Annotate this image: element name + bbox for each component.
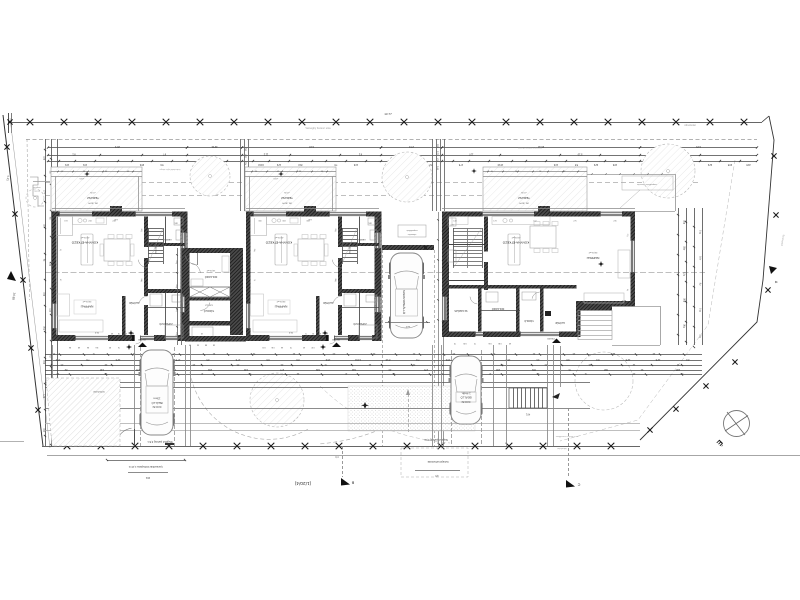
svg-text:173: 173 [493,221,496,223]
svg-text:Meglévő parking 3,5m: Meglévő parking 3,5m [148,440,173,443]
svg-text:8'10: 8'10 [385,358,390,361]
svg-text:KAMRA: KAMRA [358,238,366,241]
svg-text:41,05 m2: 41,05 m2 [80,236,90,238]
svg-text:84: 84 [69,346,71,348]
svg-text:36: 36 [197,344,199,346]
svg-text:KONYHA-ÉTKEZŐ: KONYHA-ÉTKEZŐ [502,241,529,246]
svg-text:58: 58 [213,344,215,346]
svg-text:60: 60 [303,346,305,348]
svg-text:24,05 m2: 24,05 m2 [276,300,286,302]
svg-text:VB. 40/70: VB. 40/70 [87,202,97,204]
svg-text:LÉPCSŐ: LÉPCSŐ [154,246,157,255]
svg-text:13'4: 13'4 [445,358,450,361]
svg-text:5'10: 5'10 [577,153,582,156]
svg-text:16'6: 16'6 [505,358,510,361]
svg-text:PILLÉR: PILLÉR [138,338,146,341]
svg-text:10'10: 10'10 [497,163,503,165]
svg-text:PILLÉR: PILLÉR [547,337,555,340]
svg-text:KONYHA-ÉTKEZŐ: KONYHA-ÉTKEZŐ [71,241,98,246]
svg-text:11'9: 11'9 [696,145,701,149]
svg-text:12'2: 12'2 [276,163,281,165]
svg-text:72: 72 [474,342,476,344]
svg-text:+0,15: +0,15 [283,191,289,193]
svg-text:277: 277 [279,368,284,371]
svg-text:143: 143 [453,221,456,223]
svg-text:80: 80 [109,346,111,348]
svg-text:368: 368 [603,368,608,371]
svg-text:244: 244 [112,221,115,223]
svg-text:TÁROLÓ: TÁROLÓ [204,309,214,312]
svg-text:57: 57 [125,332,127,334]
svg-text:23'5: 23'5 [727,163,732,165]
svg-text:12'8: 12'8 [625,358,630,361]
svg-text:235: 235 [613,221,616,223]
svg-text:SZ.GARÁZS: SZ.GARÁZS [454,309,467,312]
svg-text:NAPPALI: NAPPALI [274,305,287,309]
svg-text:24,05 m2: 24,05 m2 [82,300,92,302]
svg-text:128: 128 [463,342,466,344]
svg-text:27'2: 27'2 [409,145,414,149]
svg-text:behajtó térburkolat: behajtó térburkolat [427,460,448,463]
svg-text:79: 79 [454,342,456,344]
svg-text:+0,15: +0,15 [520,191,526,193]
svg-text:xx m kerítés vonalában: xx m kerítés vonalában [555,435,578,438]
svg-text:228: 228 [675,368,680,371]
svg-text:349: 349 [315,368,320,371]
svg-text:22'11: 22'11 [211,145,218,149]
svg-text:17: 17 [326,332,328,334]
svg-text:19'6: 19'6 [612,163,617,165]
svg-text:ELŐTÉR: ELŐTÉR [323,301,333,304]
svg-text:ELŐTÉR: ELŐTÉR [129,301,139,304]
svg-text:NAPPALI: NAPPALI [586,256,599,260]
svg-text:234: 234 [88,221,91,223]
svg-text:71: 71 [305,332,307,334]
svg-text:146: 146 [99,368,104,371]
svg-text:B: B [351,481,354,485]
svg-text:11'2: 11'2 [263,153,268,156]
svg-text:41,05 m2: 41,05 m2 [511,236,521,238]
svg-text:68: 68 [78,346,80,348]
svg-text:KONYHA-ÉTKEZŐ: KONYHA-ÉTKEZŐ [265,241,292,246]
svg-text:17'1: 17'1 [55,358,60,361]
svg-text:152: 152 [533,221,536,223]
svg-text:66: 66 [281,346,283,348]
svg-text:14'6: 14'6 [353,163,358,165]
svg-text:csapadékvíz elvezetés: csapadékvíz elvezetés [637,183,657,186]
svg-text:41,05 m2: 41,05 m2 [274,236,284,238]
svg-text:térburkolat lejtés iránya: térburkolat lejtés iránya [159,168,181,171]
svg-text:106: 106 [488,342,491,344]
svg-text:28'3: 28'3 [139,163,144,165]
svg-text:18'9: 18'9 [325,358,330,361]
svg-text:13.77: 13.77 [384,112,392,116]
svg-text:270: 270 [135,368,140,371]
svg-text:134: 134 [243,368,248,371]
svg-text:24,05 m2: 24,05 m2 [588,251,598,253]
svg-text:ZUHANYZÓ: ZUHANYZÓ [159,322,172,325]
svg-text:91: 91 [312,332,314,334]
svg-text:meglévő: meglévő [33,186,40,188]
svg-text:206: 206 [495,368,500,371]
svg-text:14,05 m2: 14,05 m2 [206,269,216,271]
svg-text:KAMRA: KAMRA [164,238,172,241]
svg-text:(1/20/4): (1/20/4) [294,480,311,486]
svg-text:132: 132 [311,346,314,348]
svg-text:PILLÉR: PILLÉR [332,338,340,341]
svg-text:TERASZ: TERASZ [281,196,293,200]
svg-text:22'2: 22'2 [707,163,712,165]
svg-text:19'1: 19'1 [64,163,69,165]
svg-text:ZUHANYZÓ: ZUHANYZÓ [353,322,366,325]
svg-text:útburkolat: útburkolat [557,447,567,450]
svg-text:51: 51 [59,249,61,251]
svg-text:19'10: 19'10 [258,163,264,165]
svg-text:WC: WC [174,222,178,224]
svg-text:ELŐTÉR: ELŐTÉR [555,321,565,324]
svg-text:22'8: 22'8 [746,163,751,165]
svg-text:VB. 40/70: VB. 40/70 [518,202,528,204]
svg-text:202: 202 [207,368,212,371]
svg-text:74: 74 [118,346,120,348]
svg-text:86: 86 [87,346,89,348]
svg-text:275: 275 [423,368,428,371]
svg-text:SZERVIZBEÁLLÓ: SZERVIZBEÁLLÓ [402,290,407,315]
svg-text:+0,15: +0,15 [80,177,85,179]
svg-text:LÉPCSŐ: LÉPCSŐ [348,246,351,255]
svg-text:136: 136 [271,346,274,348]
svg-text:359: 359 [531,368,536,371]
svg-text:DOLGOZÓ: DOLGOZÓ [492,307,505,310]
svg-text:22'2: 22'2 [593,163,598,165]
svg-text:+0,15: +0,15 [89,191,95,193]
svg-text:DOLGOZÓ: DOLGOZÓ [205,275,218,278]
svg-text:61: 61 [319,332,321,334]
svg-text:12'3: 12'3 [115,358,120,361]
svg-text:87: 87 [59,279,61,281]
svg-text:88: 88 [205,344,207,346]
svg-text:342: 342 [351,368,356,371]
svg-text:3'10: 3'10 [298,163,303,165]
svg-text:76: 76 [253,279,255,281]
svg-text:14'3: 14'3 [553,163,558,165]
svg-text:8,05 m2: 8,05 m2 [204,304,212,306]
svg-text:301: 301 [145,476,150,480]
svg-text:TÁROLÓ: TÁROLÓ [524,319,534,322]
svg-text:13'1: 13'1 [82,163,87,165]
svg-text:TERASZ: TERASZ [518,196,530,200]
svg-text:NAPPALI: NAPPALI [80,305,93,309]
svg-text:szennyvízcsatorna bekötés: szennyvízcsatorna bekötés [518,147,542,150]
svg-text:193: 193 [64,221,67,223]
svg-text:VB. 40/70: VB. 40/70 [281,202,291,204]
svg-text:I parasztház körbejárás 1,10 m: I parasztház körbejárás 1,10 m [129,465,163,468]
svg-text:63: 63 [509,342,511,344]
svg-text:138: 138 [498,342,501,344]
svg-text:elvezetés: elvezetés [408,233,416,236]
svg-text:91: 91 [626,289,628,291]
svg-text:Verseghy Ferenc utca: Verseghy Ferenc utca [305,126,331,130]
svg-text:WC: WC [368,222,372,224]
svg-text:17'6: 17'6 [235,358,240,361]
svg-text:C: C [577,483,580,487]
svg-text:TERASZ: TERASZ [87,196,99,200]
svg-text:304: 304 [306,221,309,223]
svg-text:csapadékvíz: csapadékvíz [406,229,417,231]
svg-text:63: 63 [111,332,113,334]
svg-text:17'8: 17'8 [458,163,463,165]
svg-text:116: 116 [95,346,98,348]
svg-text:48'1: 48'1 [525,413,530,415]
svg-text:11'2: 11'2 [309,145,314,149]
svg-text:88: 88 [132,332,134,334]
svg-text:103: 103 [262,346,265,348]
svg-text:+0,15: +0,15 [274,177,279,179]
svg-text:300: 300 [258,221,261,223]
svg-text:térburkolat: térburkolat [93,390,105,393]
svg-text:20'3: 20'3 [115,145,120,149]
svg-text:11'11: 11'11 [355,358,361,361]
svg-text:78: 78 [118,332,120,334]
svg-text:17'5: 17'5 [175,358,180,361]
svg-text:13mn: 13mn [153,397,160,401]
svg-text:12'6: 12'6 [655,358,660,361]
svg-text:1 férőh.: 1 férőh. [461,392,471,396]
svg-text:13'7: 13'7 [468,153,473,156]
svg-text:275: 275 [573,221,576,223]
svg-text:útburkolat: útburkolat [684,123,696,127]
svg-text:73: 73 [290,346,292,348]
svg-text:Meglévő parking 3,5m: Meglévő parking 3,5m [424,438,448,441]
svg-text:303: 303 [282,221,285,223]
